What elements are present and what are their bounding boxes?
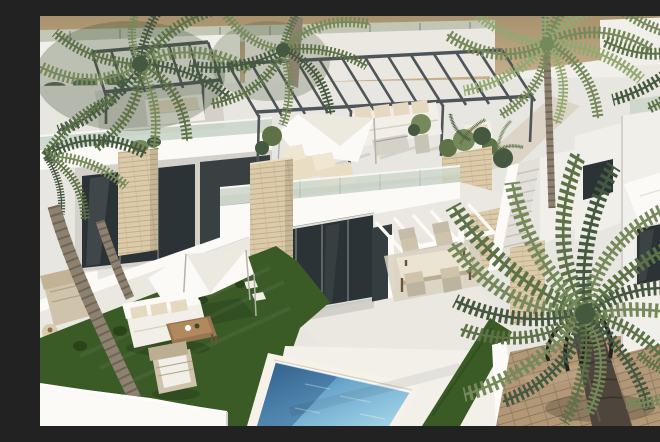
scene-canvas — [40, 16, 660, 426]
plant-pot — [414, 134, 430, 154]
right-villa — [622, 90, 660, 354]
villa-render-image — [40, 16, 660, 426]
